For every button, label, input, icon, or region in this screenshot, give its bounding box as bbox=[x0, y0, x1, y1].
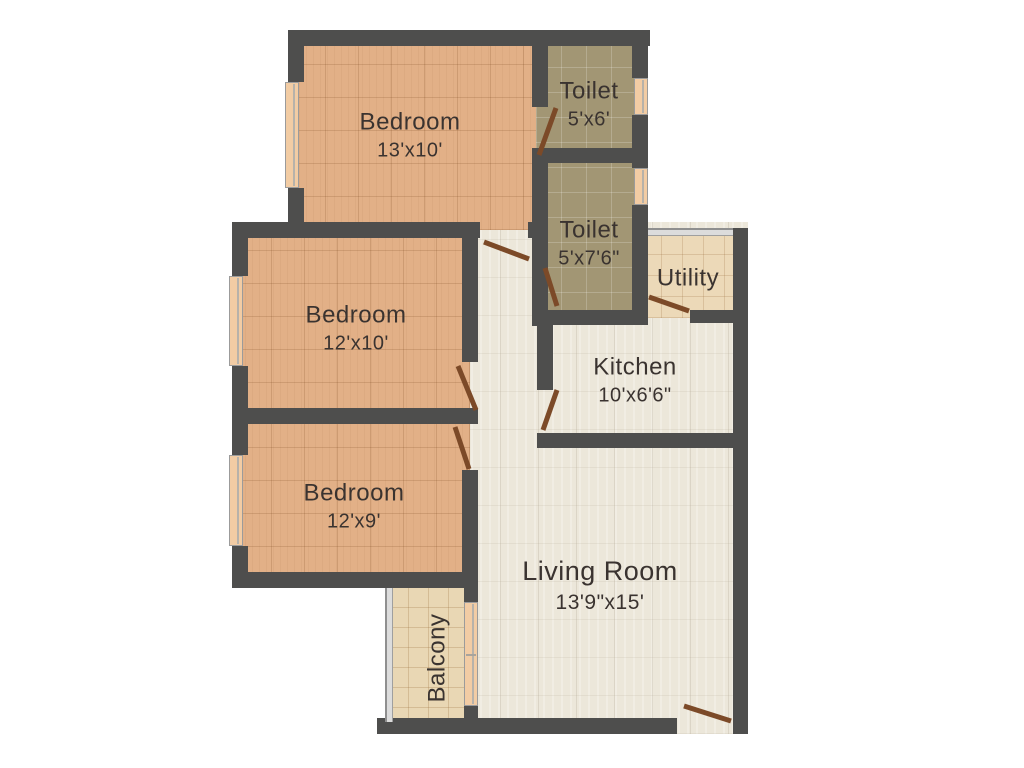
room-label-bedroom-13x10: Bedroom 13'x10' bbox=[360, 106, 461, 163]
room-label-toilet-5x7-6: Toilet 5'x7'6" bbox=[558, 214, 620, 271]
door-bedroom2 bbox=[458, 366, 476, 410]
door-utility bbox=[649, 297, 689, 311]
room-name: Bedroom bbox=[360, 106, 461, 137]
door-kitchen bbox=[543, 390, 557, 430]
room-dims: 5'x7'6" bbox=[558, 246, 620, 272]
room-label-living-room: Living Room 13'9"x15' bbox=[522, 554, 678, 616]
room-name: Balcony bbox=[421, 614, 452, 703]
door-toilet1 bbox=[539, 108, 556, 155]
room-label-utility: Utility bbox=[657, 262, 719, 293]
room-name: Utility bbox=[657, 262, 719, 293]
room-name: Kitchen bbox=[593, 351, 677, 382]
room-name: Toilet bbox=[558, 214, 620, 245]
room-name: Living Room bbox=[522, 554, 678, 589]
room-label-kitchen: Kitchen 10'x6'6" bbox=[593, 351, 677, 408]
door-toilet2 bbox=[545, 268, 557, 306]
room-name: Bedroom bbox=[306, 299, 407, 330]
room-label-bedroom-12x9: Bedroom 12'x9' bbox=[304, 477, 405, 534]
room-dims: 13'x10' bbox=[360, 138, 461, 164]
door-leaves bbox=[0, 0, 1024, 768]
floor-plan: Bedroom 13'x10' Toilet 5'x6' Toilet 5'x7… bbox=[0, 0, 1024, 768]
door-bedroom3 bbox=[455, 427, 469, 469]
door-entrance bbox=[684, 706, 731, 721]
room-dims: 12'x9' bbox=[304, 509, 405, 535]
door-bedroom1 bbox=[484, 242, 529, 259]
room-dims: 10'x6'6" bbox=[593, 383, 677, 409]
room-name: Bedroom bbox=[304, 477, 405, 508]
room-name: Toilet bbox=[559, 75, 618, 106]
room-label-balcony: Balcony bbox=[421, 614, 452, 703]
room-dims: 5'x6' bbox=[559, 107, 618, 133]
room-label-bedroom-12x10: Bedroom 12'x10' bbox=[306, 299, 407, 356]
room-label-toilet-5x6: Toilet 5'x6' bbox=[559, 75, 618, 132]
room-dims: 13'9"x15' bbox=[522, 589, 678, 616]
room-dims: 12'x10' bbox=[306, 331, 407, 357]
